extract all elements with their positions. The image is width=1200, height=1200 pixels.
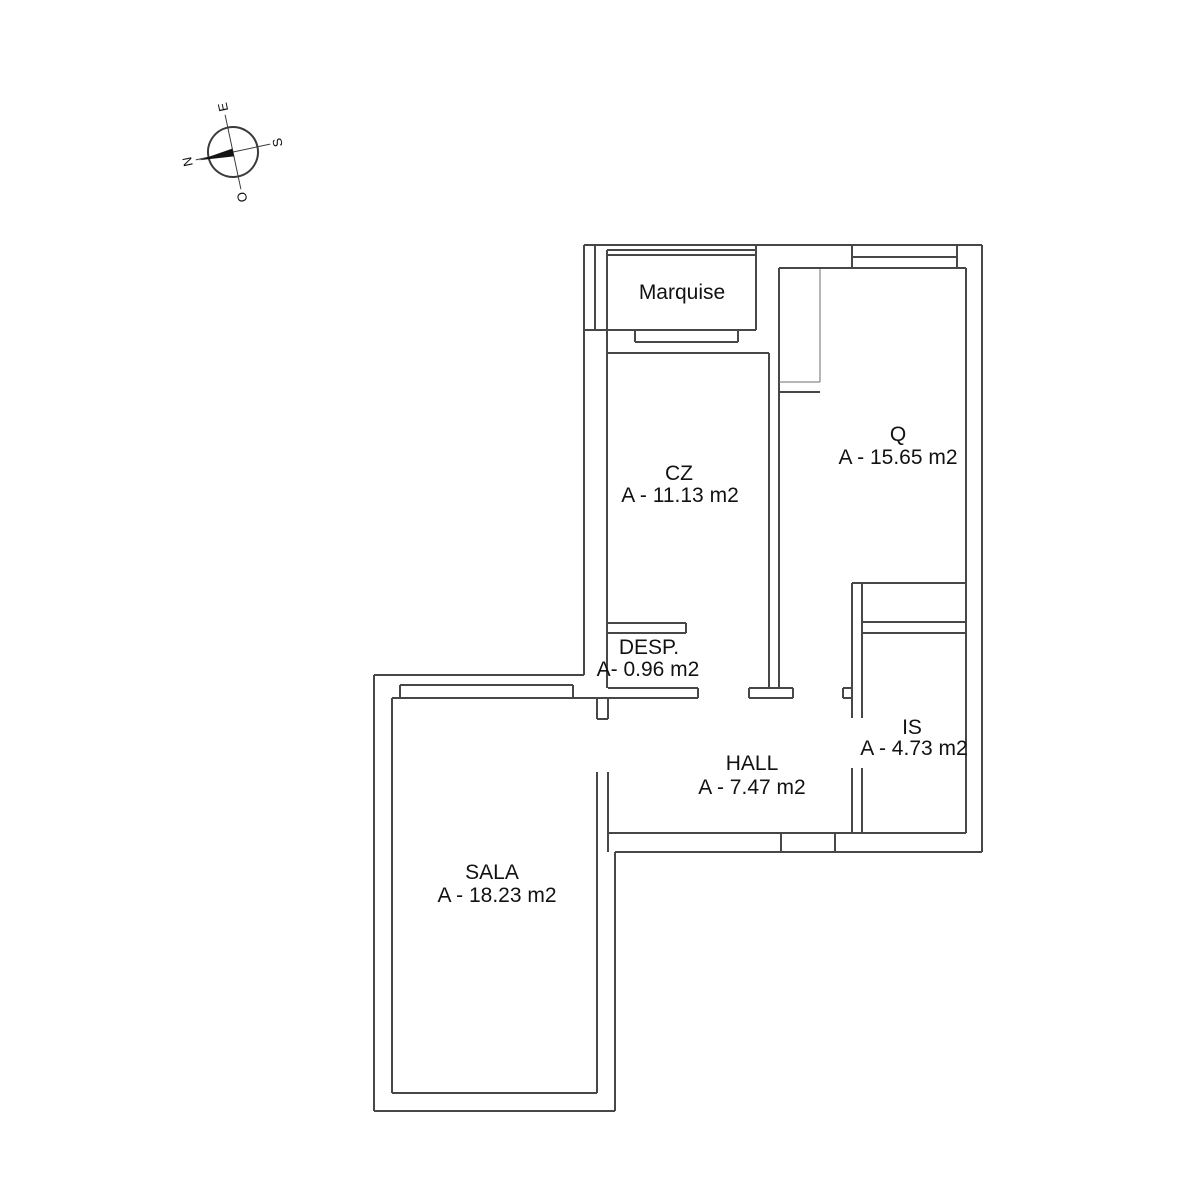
room-area-cz: A - 11.13 m2 bbox=[621, 484, 739, 507]
floorplan-svg: N E S O Marquise CZ A - 11.13 m2 Q A - 1… bbox=[0, 0, 1200, 1200]
room-label-sala: SALA bbox=[465, 861, 519, 884]
room-label-cz: CZ bbox=[665, 462, 693, 485]
room-label-marquise: Marquise bbox=[639, 281, 725, 304]
floorplan-canvas: N E S O Marquise CZ A - 11.13 m2 Q A - 1… bbox=[0, 0, 1200, 1200]
divider-wall-cz-q bbox=[749, 268, 793, 698]
room-area-hall: A - 7.47 m2 bbox=[698, 776, 805, 799]
room-label-desp: DESP. bbox=[619, 636, 679, 659]
compass-letter-e: E bbox=[215, 101, 232, 113]
compass-needle bbox=[198, 149, 234, 164]
bathroom-walls bbox=[843, 583, 966, 833]
room-label-is: IS bbox=[902, 716, 922, 739]
room-area-is: A - 4.73 m2 bbox=[860, 737, 967, 760]
compass: N E S O bbox=[170, 91, 296, 213]
room-label-hall: HALL bbox=[726, 752, 779, 775]
room-area-q: A - 15.65 m2 bbox=[838, 446, 957, 469]
room-labels: Marquise CZ A - 11.13 m2 Q A - 15.65 m2 … bbox=[437, 281, 967, 907]
compass-letter-o: O bbox=[234, 191, 251, 204]
room-label-q: Q bbox=[890, 423, 906, 446]
compass-letter-n: N bbox=[179, 156, 196, 168]
kitchen-walls bbox=[608, 330, 769, 353]
room-area-desp: A- 0.96 m2 bbox=[597, 658, 700, 681]
compass-letter-s: S bbox=[269, 136, 286, 148]
room-area-sala: A - 18.23 m2 bbox=[437, 884, 556, 907]
